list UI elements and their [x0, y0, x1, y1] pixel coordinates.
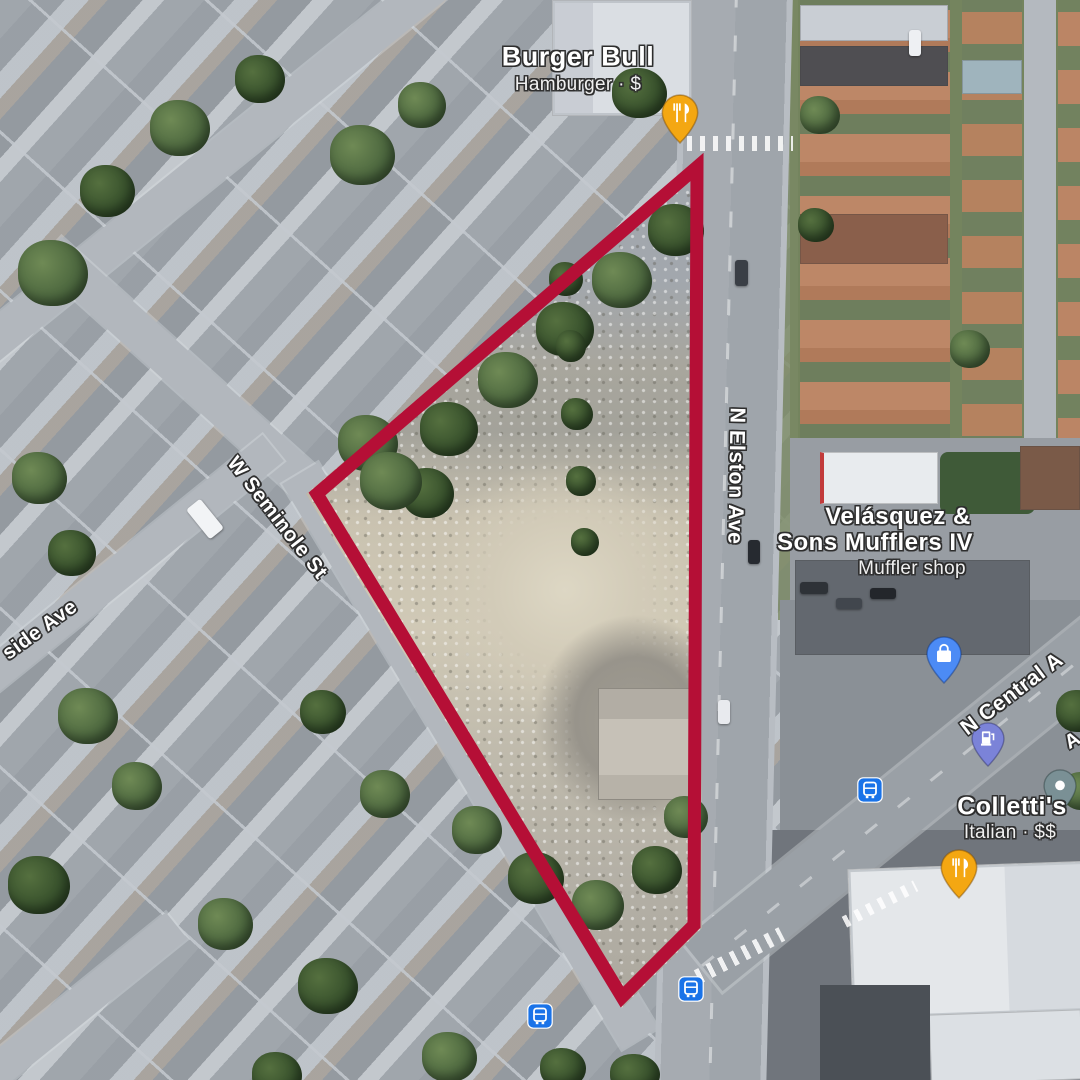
tree [800, 96, 840, 134]
tree [398, 82, 446, 128]
tree [556, 330, 586, 362]
tree [566, 466, 596, 496]
poi-subtitle-burger-bull: Hamburger · $ [515, 74, 641, 96]
tree [478, 352, 538, 408]
car [748, 540, 760, 564]
white-roof [929, 1009, 1080, 1080]
poi-label-velasquez-line1[interactable]: Velásquez & [825, 503, 971, 531]
alley-road [1024, 0, 1056, 468]
poi-subtitle-colletti: Italian · $$ [964, 822, 1056, 844]
tree [950, 330, 990, 368]
velasquez-building [820, 452, 938, 504]
tree [452, 806, 502, 854]
tree [300, 690, 346, 734]
tree [648, 204, 704, 256]
tree [592, 252, 652, 308]
car [735, 260, 748, 286]
tree [330, 125, 395, 185]
dark-lot [820, 985, 930, 1080]
tree [549, 262, 583, 296]
crosswalk [687, 136, 793, 151]
house-row [1058, 0, 1080, 468]
satellite-map[interactable]: N Elston Ave W Seminole St side Ave N Ce… [0, 0, 1080, 1080]
street-label-elston: N Elston Ave [722, 407, 749, 544]
tree [80, 165, 135, 217]
tree [798, 208, 834, 242]
tree [198, 898, 253, 950]
tree [561, 398, 593, 430]
tree [632, 846, 682, 894]
brown-roof [1020, 446, 1080, 510]
tree [58, 688, 118, 744]
tree [48, 530, 96, 576]
tree [12, 452, 67, 504]
tree [572, 880, 624, 930]
truck [909, 30, 921, 56]
car [800, 582, 828, 594]
tree [571, 528, 599, 556]
poi-subtitle-velasquez: Muffler shop [858, 558, 966, 580]
tree [298, 958, 358, 1014]
tree [508, 852, 564, 904]
tree [18, 240, 88, 306]
tree [360, 770, 410, 818]
poi-label-velasquez-line2[interactable]: Sons Mufflers IV [777, 529, 973, 557]
silver-roof [800, 5, 948, 41]
tree [420, 402, 478, 456]
poi-label-burger-bull[interactable]: Burger Bull [502, 42, 655, 73]
car [718, 700, 730, 724]
building-remnant [598, 688, 700, 800]
car [836, 598, 862, 609]
tree [8, 856, 70, 914]
tree [422, 1032, 477, 1080]
tree [112, 762, 162, 810]
car [870, 588, 896, 599]
tree [235, 55, 285, 103]
dark-roof [800, 46, 948, 86]
blue-roof [962, 60, 1022, 94]
tree [150, 100, 210, 156]
tree [360, 452, 422, 510]
tree [664, 796, 708, 838]
poi-label-colletti[interactable]: Colletti's [957, 793, 1067, 822]
